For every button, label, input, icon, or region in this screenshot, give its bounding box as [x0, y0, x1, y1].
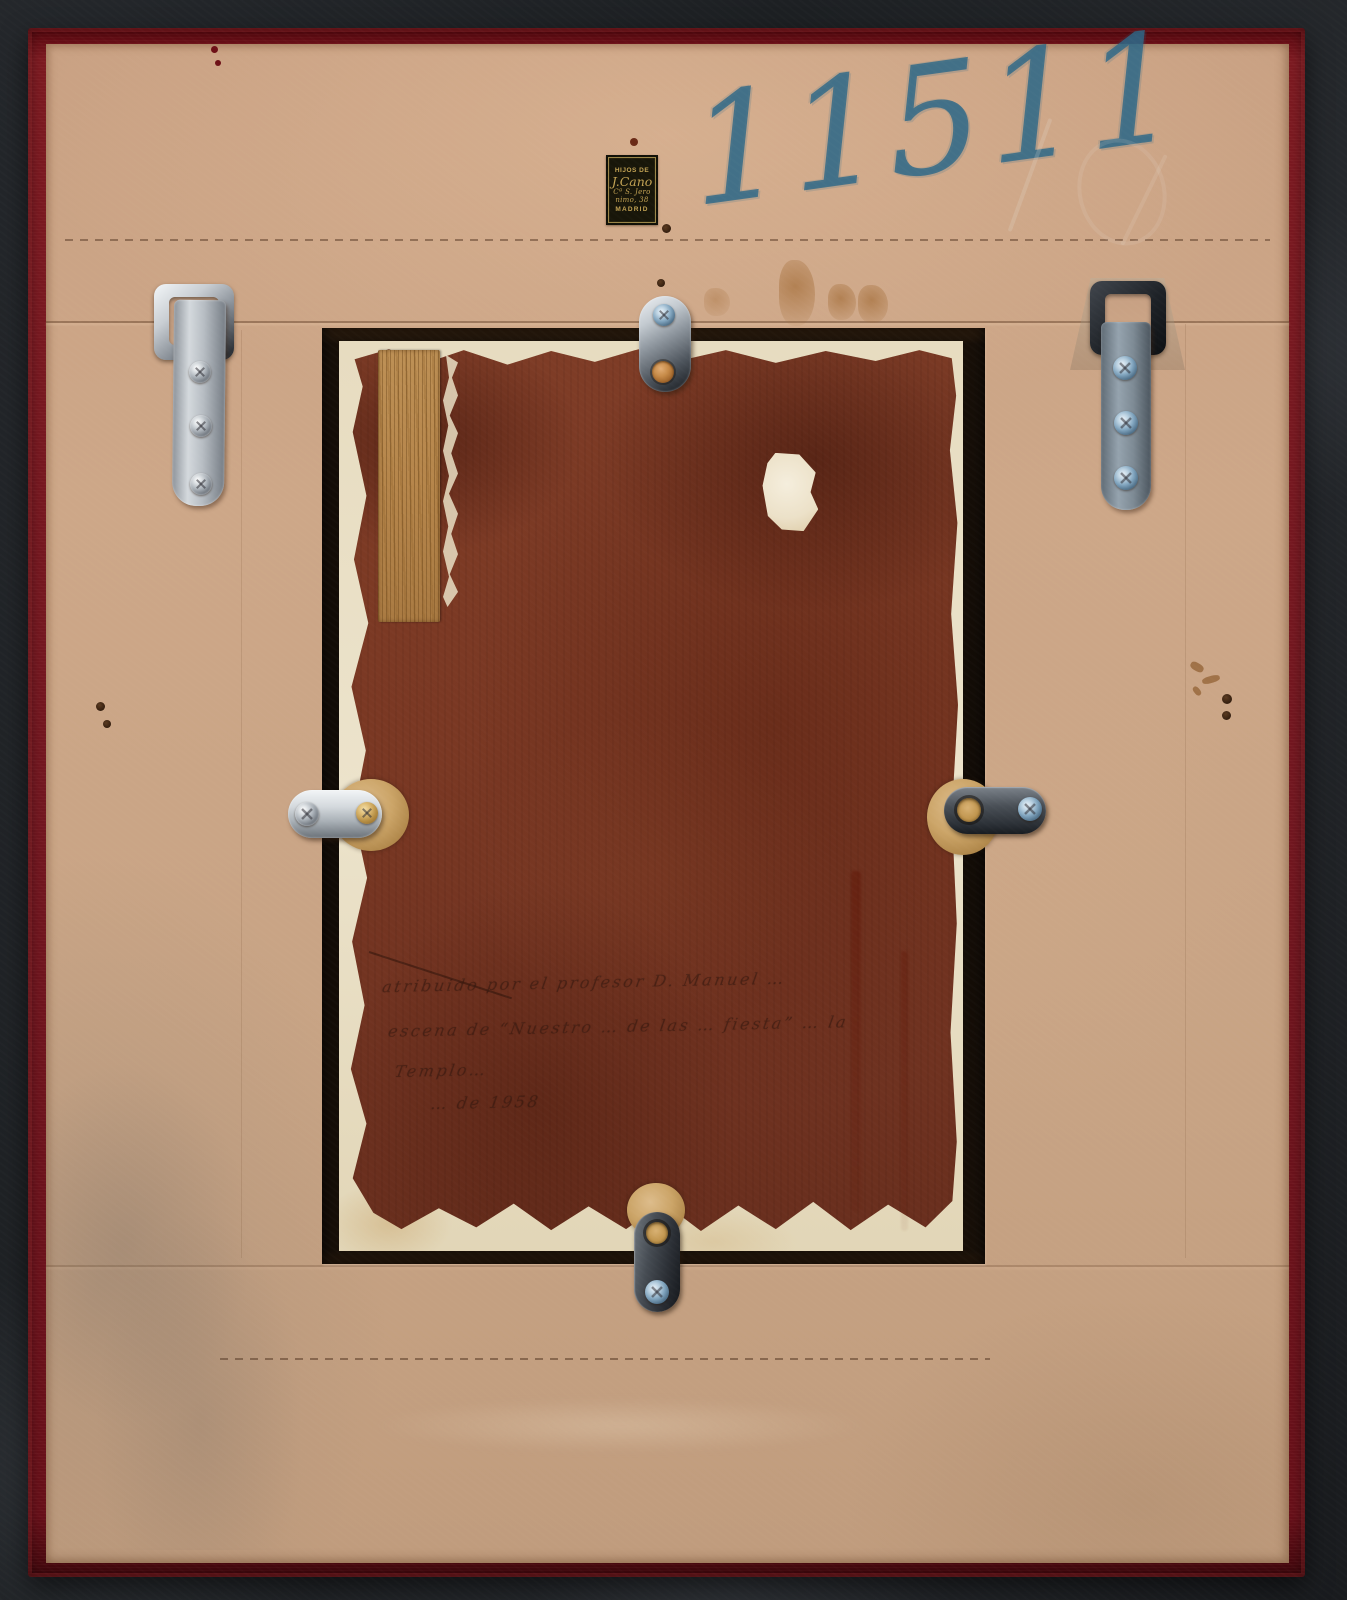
photo-back-of-framed-painting: atribuido por el profesor D. Manuel … es…: [0, 0, 1347, 1600]
paint-drip: [851, 871, 861, 1211]
screw: [653, 304, 675, 326]
screw-slot: [194, 366, 206, 378]
screw: [645, 1280, 669, 1304]
screw-slot: [361, 807, 373, 819]
wood-patch-repair: [378, 350, 440, 622]
nail-hole: [662, 224, 671, 233]
screw: [1018, 797, 1042, 821]
screw-slot: [195, 478, 207, 490]
screw: [189, 361, 211, 383]
nail-hole: [657, 279, 665, 287]
glue-stain: [828, 284, 856, 320]
screw: [1114, 411, 1138, 435]
panel-gesso-border: atribuido por el profesor D. Manuel … es…: [339, 341, 963, 1251]
paint-drip: [901, 951, 908, 1231]
red-brown-mark: [630, 138, 638, 146]
glue-stain: [858, 285, 888, 323]
screw: [1114, 466, 1138, 490]
screw-slot: [300, 807, 313, 820]
red-chip-mark: [211, 46, 218, 53]
screw: [190, 415, 212, 437]
dealer-label-line: MADRID: [608, 205, 656, 214]
red-chip-mark: [215, 60, 221, 66]
nail-hole: [1222, 711, 1231, 720]
dealer-label-line: Cª S. Jero: [608, 188, 656, 197]
screw-slot: [658, 309, 670, 321]
clip-hole: [646, 1222, 668, 1244]
screw: [190, 473, 212, 495]
nail-hole: [1222, 694, 1232, 704]
screw: [1113, 356, 1137, 380]
screw-slot: [650, 1285, 663, 1298]
backing-crack-top: [65, 239, 1270, 241]
light-smudge-band: [370, 1398, 870, 1453]
dealer-label-line: J.Cano: [608, 175, 656, 188]
clip-hole-copper: [652, 361, 674, 383]
inscription-line: Templo…: [393, 1060, 489, 1081]
screw-slot: [1119, 416, 1132, 429]
dealer-label-line: nimo, 38: [608, 196, 656, 205]
nail-hole: [96, 702, 105, 711]
dealer-label: HIJOS DE J.Cano Cª S. Jero nimo, 38 MADR…: [606, 155, 658, 225]
screw-slot: [1118, 361, 1131, 374]
screw: [295, 802, 319, 826]
backing-crack-bottom: [220, 1358, 990, 1360]
nail-hole: [103, 720, 111, 728]
glue-stain: [779, 260, 815, 326]
screw-slot: [195, 420, 207, 432]
screw-slot: [1023, 802, 1036, 815]
glue-stain: [704, 288, 730, 316]
inscription-line: … de 1958: [429, 1092, 541, 1113]
screw: [356, 802, 378, 824]
clip-hole: [957, 798, 981, 822]
gray-wash-stain: [50, 1040, 300, 1550]
screw-slot: [1119, 471, 1132, 484]
backing-vertical-seam-right: [1185, 324, 1186, 1258]
